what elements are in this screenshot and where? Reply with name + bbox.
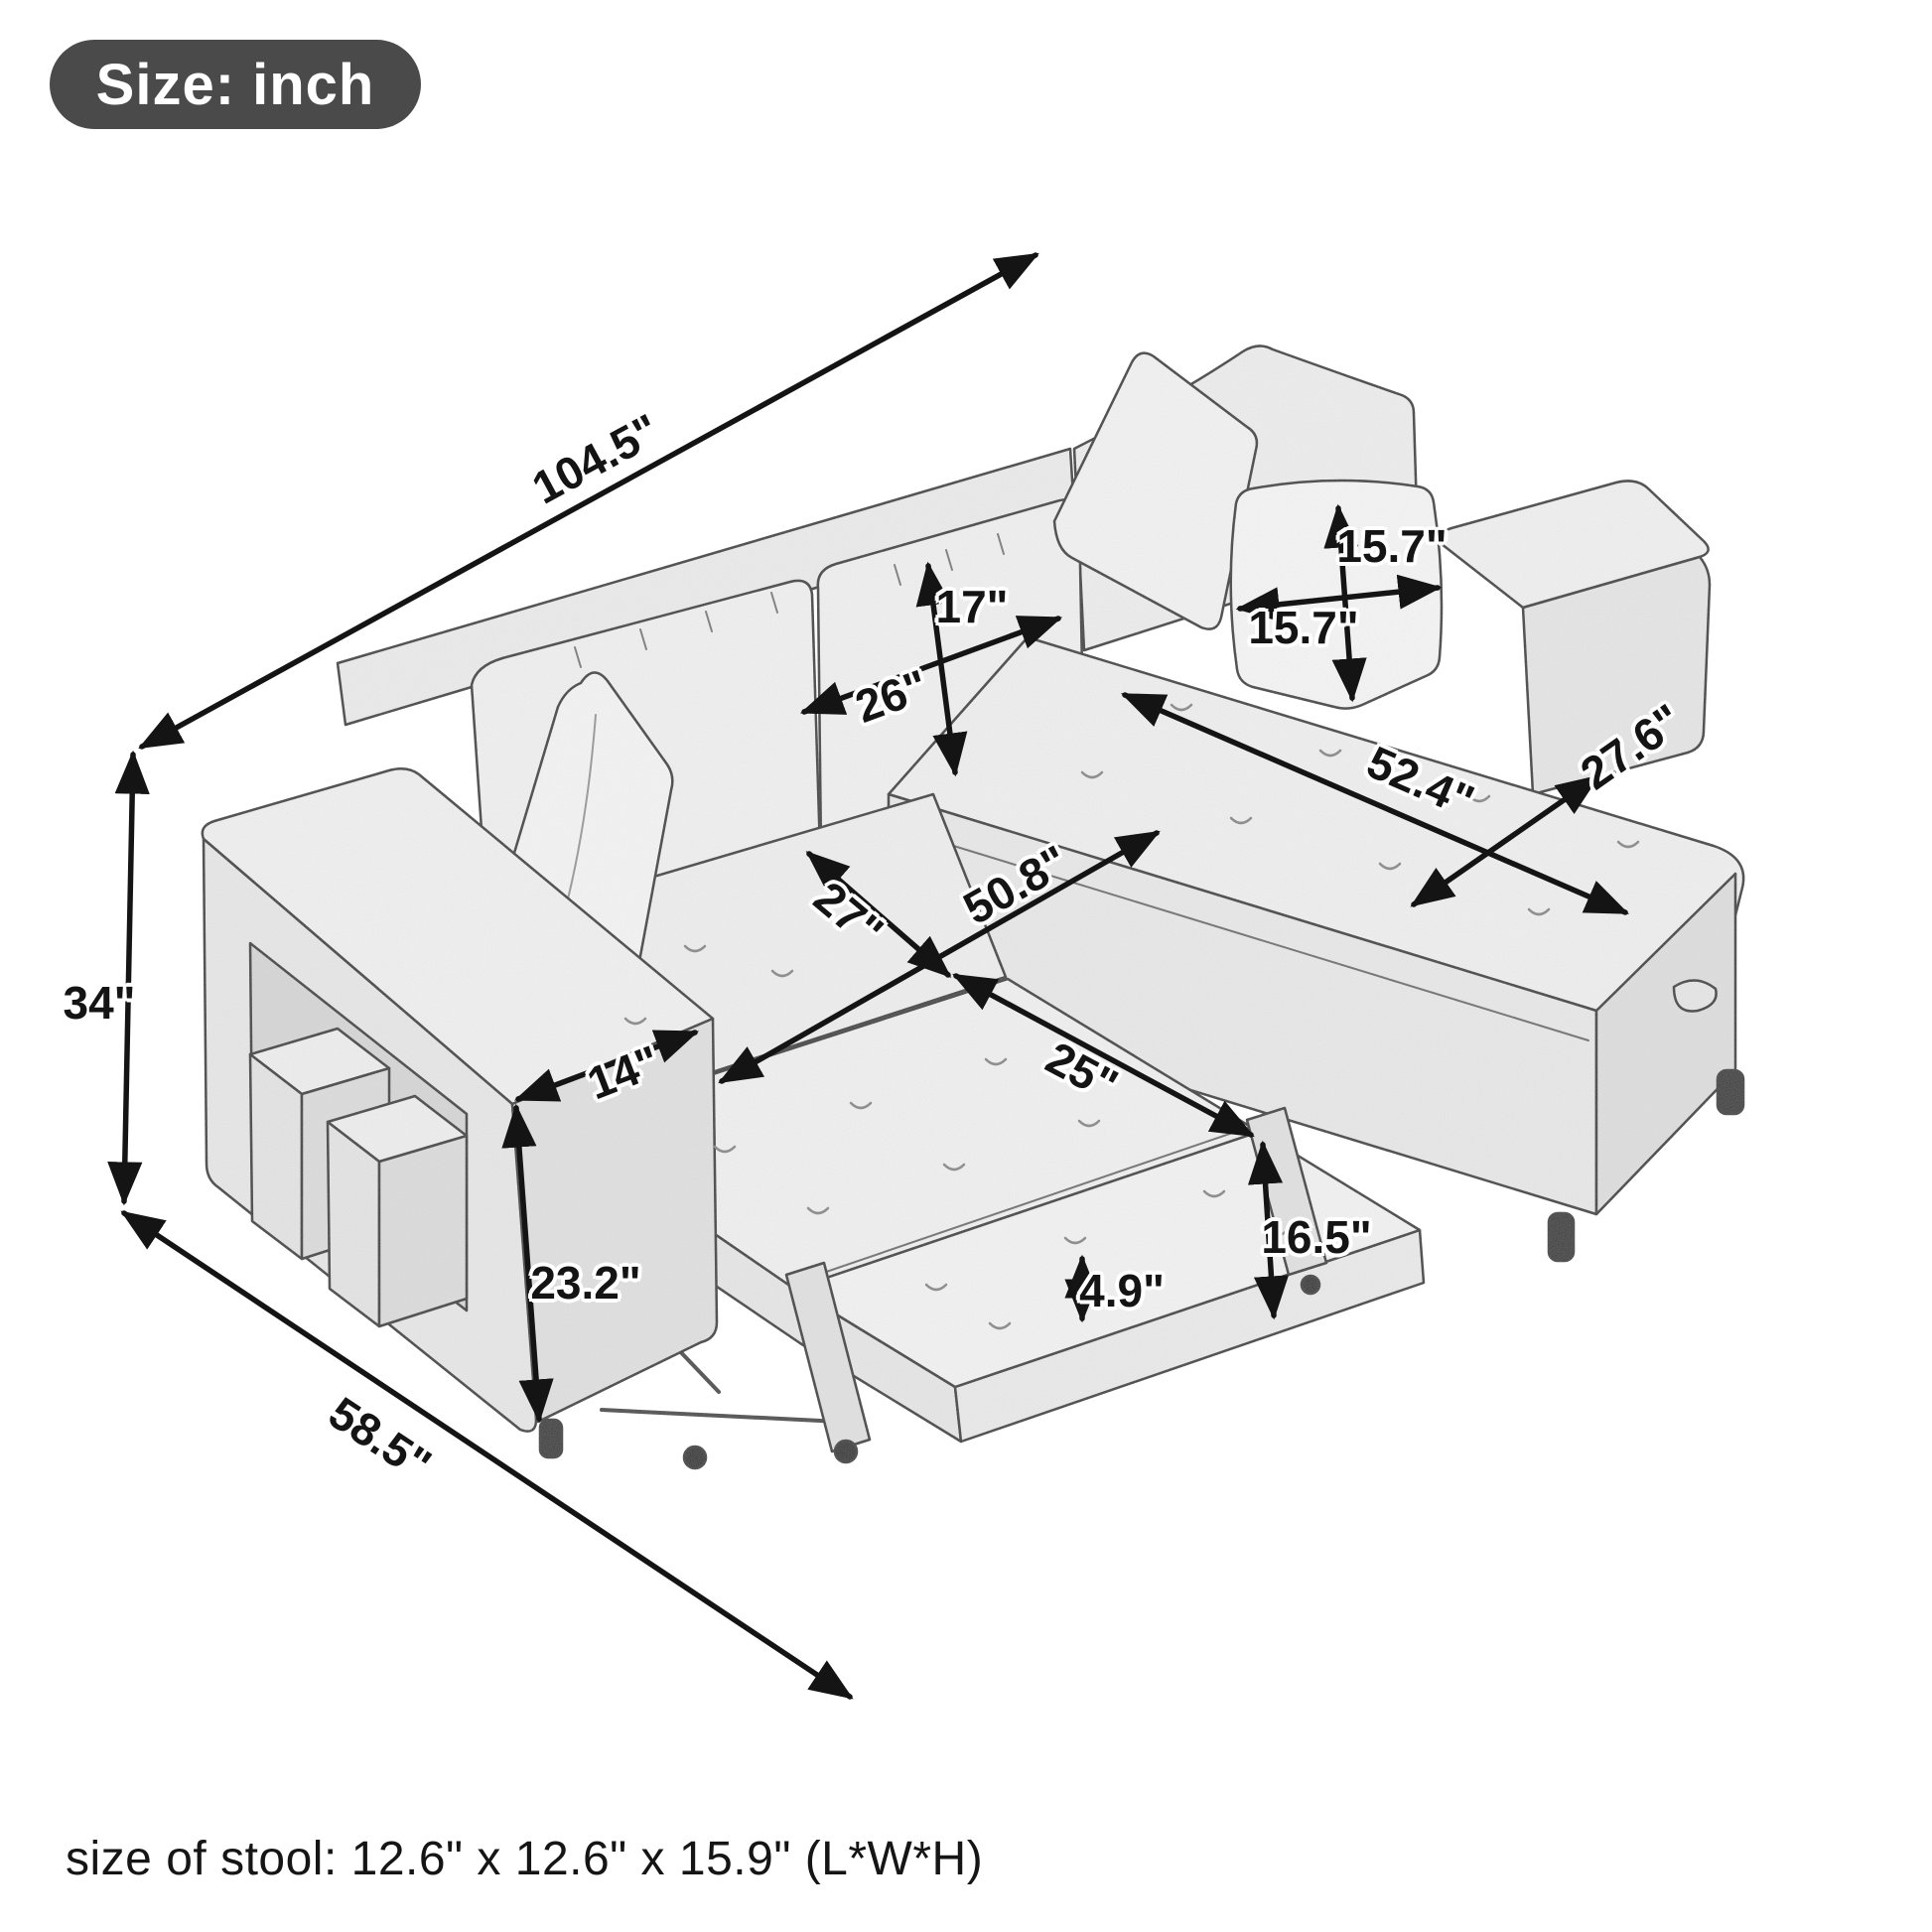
- bed-wheel: [684, 1447, 706, 1468]
- bed-wheel: [835, 1441, 857, 1462]
- storage-handle: [1674, 980, 1717, 1011]
- product-dimension-diagram: Size: inch: [0, 0, 1932, 1932]
- sofa-bed-line-drawing: [0, 0, 1932, 1932]
- stool-size-note: size of stool: 12.6" x 12.6" x 15.9" (L*…: [66, 1832, 983, 1886]
- bed-wheel: [1302, 1276, 1319, 1294]
- dim-label-back-cushion-height: 17": [936, 584, 1009, 629]
- dim-label-bed-height: 16.5": [1261, 1214, 1371, 1260]
- dim-label-pillow-height: 15.7": [1336, 523, 1447, 569]
- nesting-stool: [328, 1096, 467, 1326]
- dim-label-pillow-width: 15.7": [1248, 605, 1358, 650]
- dim-label-armrest-height: 23.2": [530, 1260, 640, 1306]
- dim-label-overall-height: 34": [64, 980, 136, 1026]
- chaise-foot: [1718, 1070, 1743, 1114]
- armrest-foot: [540, 1420, 562, 1457]
- chaise-foot: [1549, 1213, 1574, 1261]
- dim-label-mattress-thickness: 4.9": [1079, 1268, 1165, 1313]
